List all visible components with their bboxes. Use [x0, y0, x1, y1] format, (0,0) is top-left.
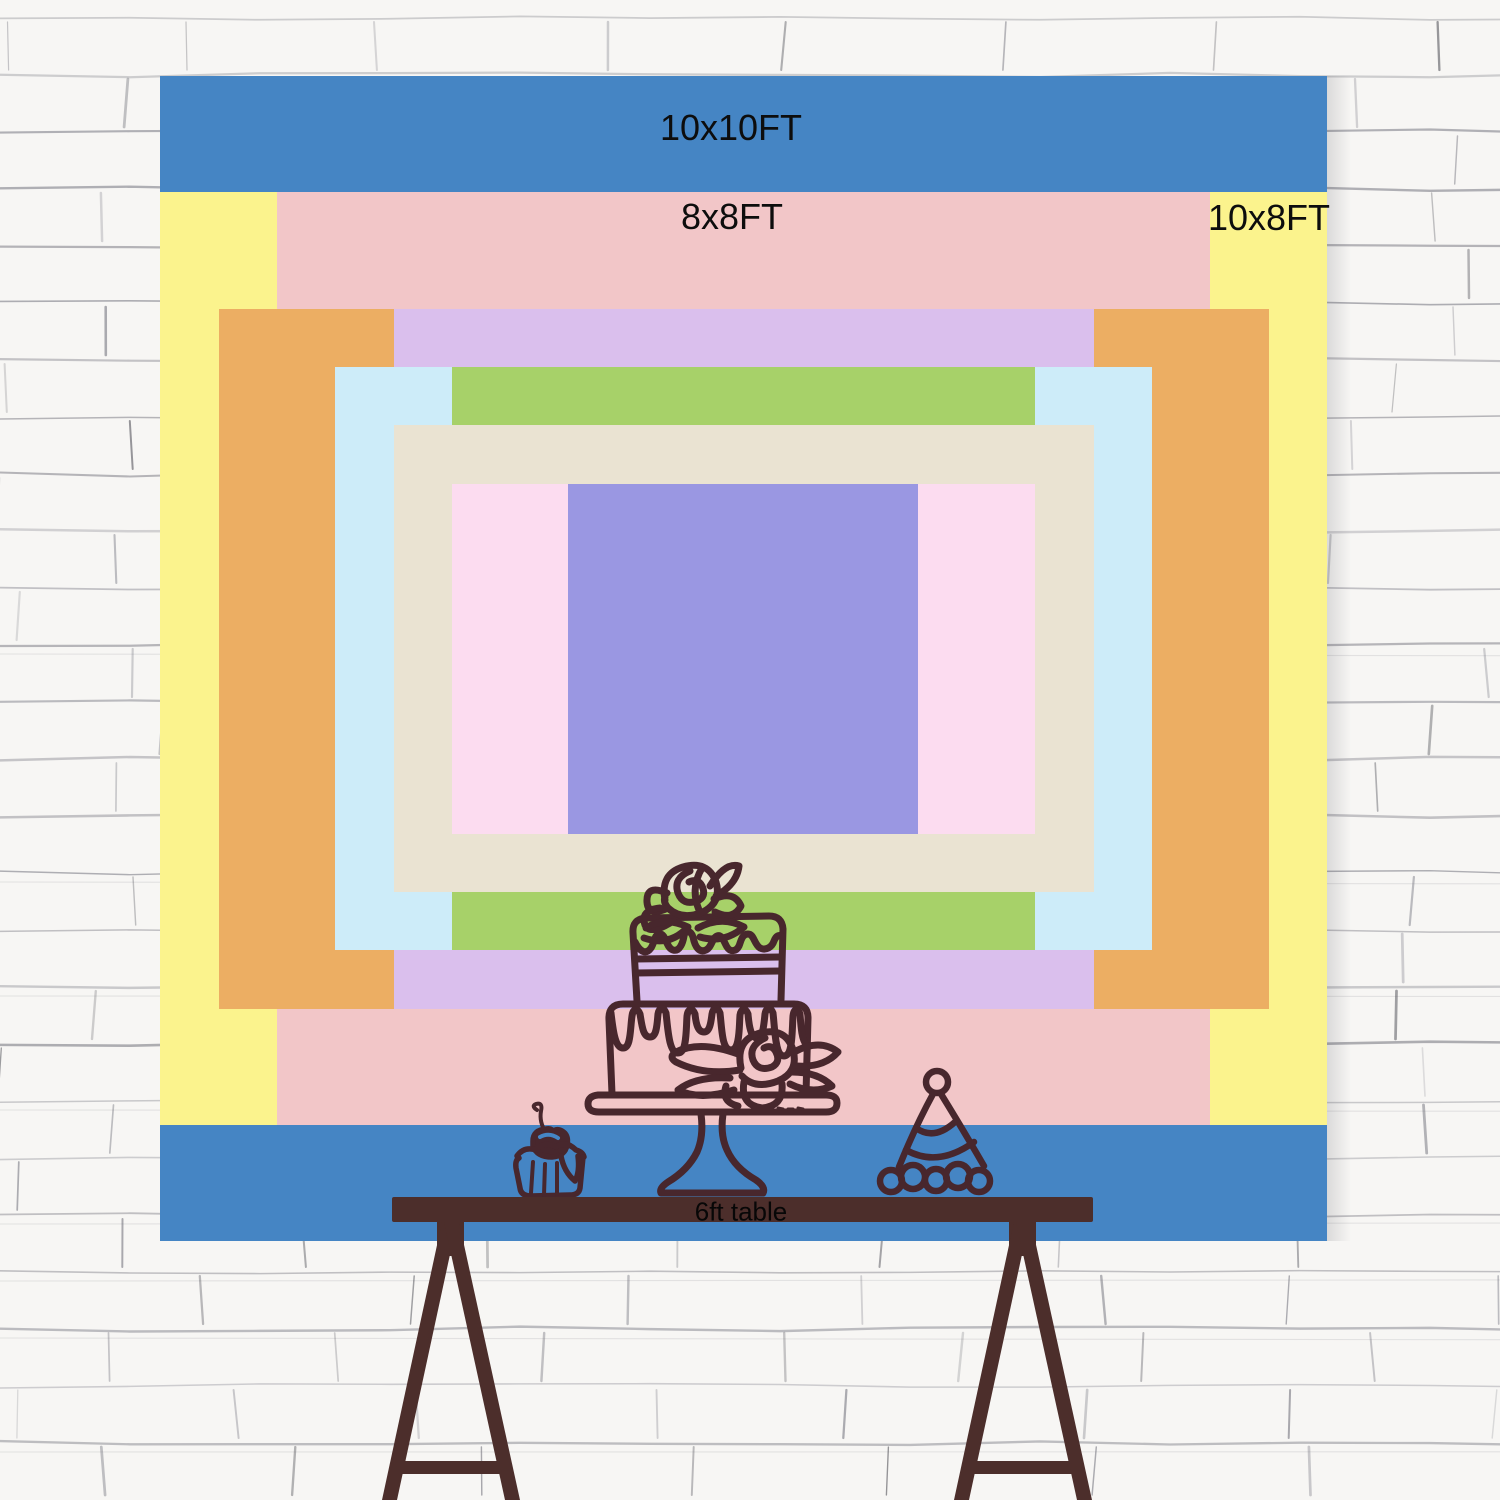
table-label: 6ft table [695, 1197, 788, 1228]
size-chart-board: 10x10FT10x8FT8x8FT9x6FT6x6FT7x5FT5x5FT6x… [0, 0, 1500, 1500]
size-label-8x8: 8x8FT [681, 196, 783, 238]
size-label-10x8: 10x8FT [1208, 197, 1330, 239]
backdrop-size-chart: 10x10FT10x8FT8x8FT9x6FT6x6FT7x5FT5x5FT6x… [0, 0, 1500, 1500]
size-label-10x10: 10x10FT [660, 107, 802, 149]
size-rect-3x3 [568, 484, 918, 834]
